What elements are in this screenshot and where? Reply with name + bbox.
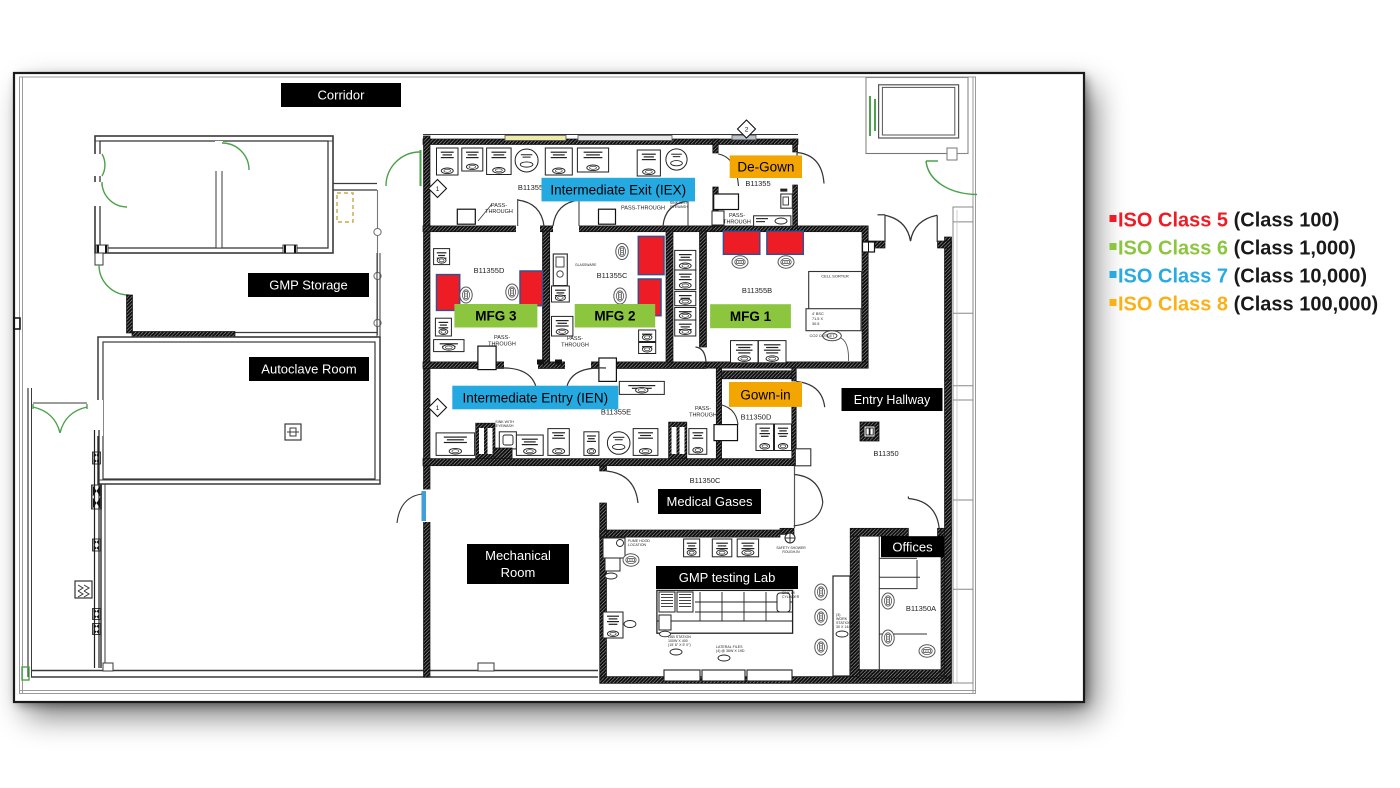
svg-text:Room: Room [501, 565, 536, 580]
svg-text:ISO Class 6 (Class 1,000): ISO Class 6 (Class 1,000) [1118, 238, 1356, 260]
svg-text:ISO Class 5 (Class 100): ISO Class 5 (Class 100) [1118, 210, 1339, 232]
svg-text:ISO Class 8 (Class 100,000): ISO Class 8 (Class 100,000) [1118, 294, 1378, 316]
svg-text:ISO Class 7 (Class 10,000): ISO Class 7 (Class 10,000) [1118, 266, 1367, 288]
svg-text:LOCATION: LOCATION [628, 543, 647, 547]
svg-text:THROUGH: THROUGH [689, 413, 717, 419]
svg-text:MFG 3: MFG 3 [475, 309, 517, 324]
svg-text:4' BSC: 4' BSC [812, 312, 824, 316]
svg-text:CYLINDER: CYLINDER [782, 595, 800, 599]
svg-text:MFG 1: MFG 1 [730, 309, 772, 324]
svg-text:Autoclave Room: Autoclave Room [261, 362, 356, 377]
svg-text:B11355: B11355 [745, 179, 770, 188]
svg-text:1: 1 [436, 405, 440, 412]
svg-text:De-Gown: De-Gown [737, 160, 794, 175]
svg-text:Intermediate Exit (IEX): Intermediate Exit (IEX) [550, 182, 686, 197]
svg-text:30.5: 30.5 [812, 322, 819, 326]
svg-text:B11355B: B11355B [742, 286, 772, 295]
svg-text:GLASSWARE: GLASSWARE [575, 263, 597, 267]
svg-text:Intermediate Entry (IEN): Intermediate Entry (IEN) [463, 390, 609, 405]
svg-text:(4) @ 36W X 19D: (4) @ 36W X 19D [716, 649, 745, 653]
svg-text:Corridor: Corridor [318, 88, 366, 103]
svg-text:GMP Storage: GMP Storage [269, 278, 348, 293]
svg-text:CELL SORTER: CELL SORTER [821, 274, 849, 279]
svg-text:PASS-THROUGH: PASS-THROUGH [621, 206, 665, 212]
svg-text:Offices: Offices [892, 539, 933, 554]
svg-text:GMP testing Lab: GMP testing Lab [679, 570, 776, 585]
svg-text:PASS-: PASS- [695, 406, 711, 412]
svg-text:ROUGH-IN: ROUGH-IN [782, 550, 800, 554]
svg-text:1: 1 [436, 186, 440, 193]
svg-text:PASS-: PASS- [729, 213, 745, 219]
svg-text:B11350: B11350 [873, 449, 898, 458]
svg-text:Medical Gases: Medical Gases [667, 494, 753, 509]
svg-text:B11350C: B11350C [690, 476, 721, 485]
svg-text:B11355C: B11355C [597, 271, 628, 280]
svg-text:71.5 X: 71.5 X [812, 317, 823, 321]
svg-text:B11350D: B11350D [741, 413, 772, 422]
svg-text:B11350A: B11350A [906, 604, 936, 613]
svg-text:Gown-in: Gown-in [740, 387, 790, 402]
svg-text:PASS-: PASS- [567, 336, 583, 342]
svg-text:THROUGH: THROUGH [485, 209, 513, 215]
svg-text:B11355D: B11355D [474, 266, 505, 275]
svg-text:(15' 6" X 5' 0"): (15' 6" X 5' 0") [668, 643, 691, 647]
svg-text:EYEWASH: EYEWASH [496, 424, 514, 428]
svg-text:MFG 2: MFG 2 [594, 309, 635, 324]
svg-text:30 X 144: 30 X 144 [836, 625, 850, 629]
svg-text:CO2 OUTLET: CO2 OUTLET [809, 333, 835, 338]
svg-text:2: 2 [745, 126, 749, 133]
svg-text:THROUGH: THROUGH [561, 343, 589, 349]
svg-text:THROUGH: THROUGH [723, 220, 751, 226]
svg-text:Mechanical: Mechanical [485, 548, 551, 563]
svg-text:Entry Hallway: Entry Hallway [854, 393, 931, 407]
svg-text:PASS-: PASS- [494, 335, 510, 341]
